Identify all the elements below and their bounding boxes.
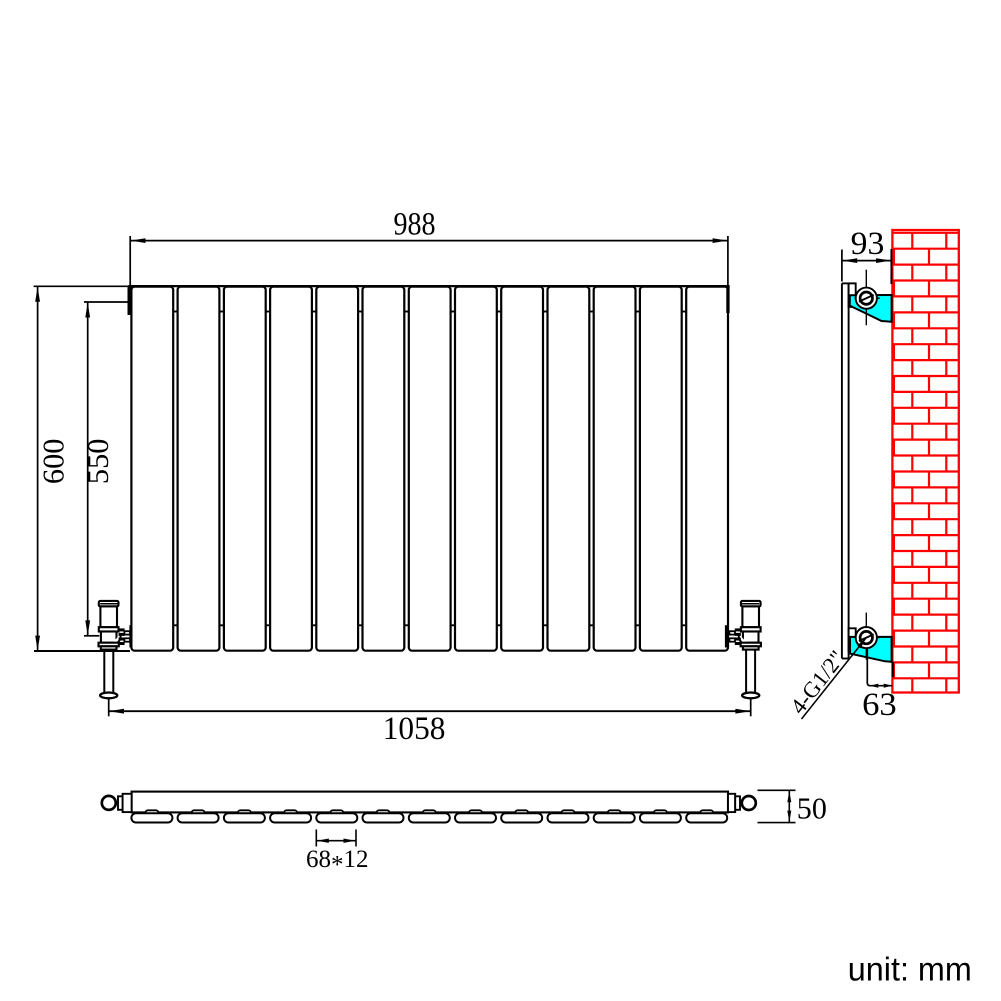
svg-text:1058: 1058 (383, 709, 446, 746)
svg-text:988: 988 (393, 206, 435, 243)
svg-text:600: 600 (36, 439, 70, 485)
svg-text:4-G1/2": 4-G1/2" (785, 646, 850, 719)
svg-text:unit: mm: unit: mm (848, 951, 972, 988)
svg-text:63: 63 (862, 687, 897, 723)
svg-text:93: 93 (851, 225, 885, 262)
svg-text:50: 50 (797, 791, 827, 826)
svg-text:68*12: 68*12 (306, 846, 369, 879)
svg-text:550: 550 (81, 439, 115, 485)
